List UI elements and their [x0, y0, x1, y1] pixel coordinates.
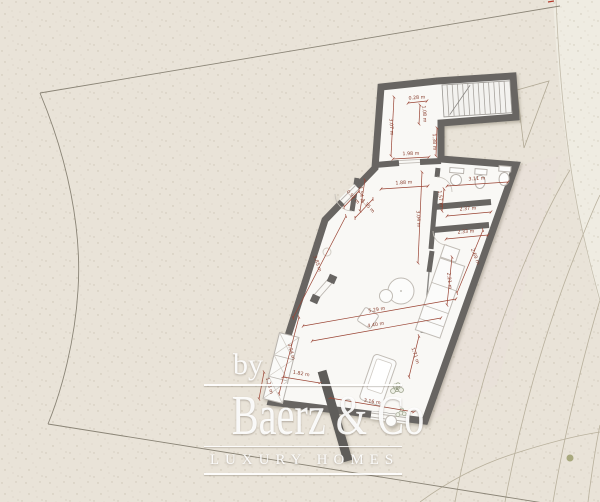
dimension-label: 3.04 m	[415, 210, 422, 227]
side-table	[380, 290, 393, 303]
watermark-logo: by Baerz & Co LUXURY HOMES	[204, 350, 402, 479]
dimension-label: 1.38 m	[431, 133, 438, 150]
dimension-label: 1.98 m	[402, 151, 419, 158]
dimension-label: 2.33 m	[457, 228, 475, 235]
logo-divider-bottom	[204, 473, 402, 475]
logo-tagline-text: LUXURY HOMES	[207, 451, 402, 469]
dimension-label: 1.08 m	[420, 105, 427, 123]
vegetation-dot	[567, 455, 574, 462]
dimension-label: 2.37 m	[459, 205, 477, 212]
site-plan-image: 0.28 m1.08 m3.07 m1.98 m1.38 m1.88 m1.54…	[0, 0, 600, 502]
logo-brand-text: Baerz & Co	[232, 390, 375, 442]
logo-by-text: by	[204, 350, 402, 380]
dimension-label: 3.07 m	[388, 118, 395, 135]
table-center-dot	[400, 290, 402, 292]
dimension-label: 1.88 m	[395, 180, 412, 187]
dimension-label: 3.11 m	[468, 176, 485, 183]
dimension-label: 0.28 m	[408, 94, 426, 101]
staircase	[442, 81, 512, 117]
